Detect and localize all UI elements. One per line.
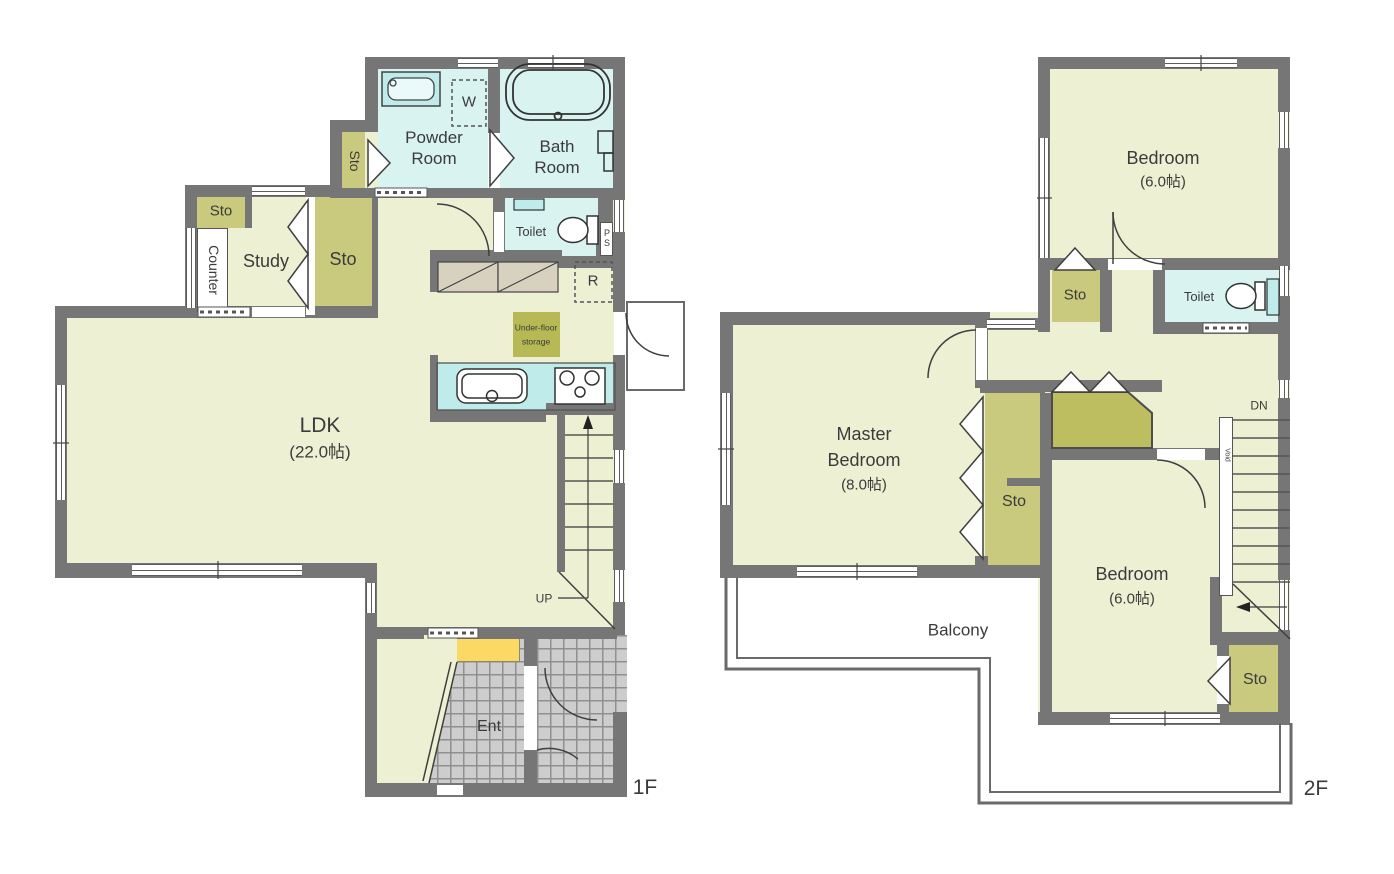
room-label-bath: Bath Room [524, 136, 590, 179]
wall [488, 57, 500, 133]
opening [306, 197, 315, 315]
room-label-ent: Ent [477, 717, 501, 737]
window [186, 228, 196, 308]
wall [377, 627, 617, 639]
wall [613, 69, 625, 200]
wall [1038, 57, 1290, 69]
void-label: Void [1222, 448, 1231, 462]
wall [546, 403, 613, 415]
sto-label-mid: Sto [1002, 492, 1026, 512]
wall [245, 190, 252, 228]
wall [1040, 393, 1052, 725]
wall [1153, 322, 1290, 334]
room-size-bedroom-low: (6.0帖) [1109, 591, 1155, 610]
wall [720, 312, 990, 325]
wall [557, 415, 565, 572]
room-label-bedroom-low: Bedroom [1095, 563, 1168, 586]
window [1039, 138, 1049, 258]
window [987, 319, 1035, 329]
window [132, 564, 302, 576]
wall [430, 410, 546, 422]
wall [372, 190, 378, 318]
window [1279, 112, 1289, 148]
floor-label-1f: 1F [633, 775, 658, 801]
wall [430, 262, 438, 292]
room-label-bedroom-top: Bedroom [1126, 147, 1199, 170]
window [1279, 266, 1289, 296]
door-opening [1217, 656, 1229, 704]
window [614, 450, 624, 483]
wall [613, 483, 625, 570]
underfloor-label-2: storage [522, 337, 550, 348]
counter-label: Counter [204, 245, 222, 295]
wall [330, 120, 378, 132]
balcony-label: Balcony [928, 619, 988, 640]
opening [488, 133, 500, 188]
window [56, 385, 66, 500]
door-opening [1157, 449, 1205, 460]
floor-label-2f: 2F [1304, 776, 1329, 802]
room-size-ldk: (22.0帖) [289, 441, 350, 462]
door-opening [976, 328, 987, 380]
ps-label: PS [603, 229, 611, 249]
wall [980, 380, 1045, 393]
stair-void-rail [1219, 417, 1233, 596]
door-opening [1108, 259, 1162, 270]
wall [430, 355, 438, 413]
wall [613, 232, 625, 312]
window [1279, 580, 1289, 630]
room-label-master-1: Master [836, 423, 891, 446]
window [252, 186, 305, 196]
window [797, 566, 917, 577]
window [528, 58, 584, 68]
room-label-ldk: LDK [300, 413, 341, 439]
window [366, 583, 376, 613]
room-label-powder: Powder Room [389, 127, 479, 170]
window [614, 570, 624, 602]
wall [1278, 148, 1290, 266]
room-label-master-2: Bedroom [827, 449, 900, 472]
sto-label-low: Sto [1243, 670, 1267, 690]
window [721, 393, 731, 505]
window [458, 58, 498, 68]
wall [613, 355, 625, 450]
wall [985, 565, 1045, 578]
underfloor-storage-box [513, 312, 560, 357]
room-toilet-2f [1165, 270, 1278, 322]
door-opening-side [614, 312, 625, 355]
opening [252, 307, 305, 317]
opening [494, 212, 504, 252]
room-size-master: (8.0帖) [841, 477, 887, 496]
sto-label-study: Sto [329, 248, 356, 271]
wall [1007, 478, 1045, 486]
stairs-up-label: UP [536, 592, 553, 607]
side-step [627, 302, 684, 390]
sto-label-hall: Sto [1064, 287, 1087, 306]
window [614, 200, 624, 232]
underfloor-label-1: Under-floor [515, 323, 558, 334]
floorplan-canvas: LDK (22.0帖) Study Counter Sto Sto Sto Po… [0, 0, 1394, 874]
sto-label-counter: Sto [210, 203, 233, 222]
room-size-bedroom-top: (6.0帖) [1140, 174, 1186, 193]
window [1165, 58, 1237, 68]
room-label-toilet-1f: Toilet [516, 224, 546, 240]
sto-label-powder: Sto [345, 150, 363, 171]
wall [365, 783, 627, 797]
room-label-toilet-2f: Toilet [1184, 289, 1214, 305]
wall [1278, 398, 1290, 580]
washer-label: W [462, 94, 476, 113]
wall [598, 198, 613, 222]
room-label-study: Study [243, 250, 289, 273]
window [1279, 380, 1289, 398]
wall [1278, 69, 1290, 112]
step-opening [437, 785, 463, 795]
wall [1040, 380, 1162, 392]
stairs-dn-label: DN [1250, 399, 1267, 414]
wall [1210, 632, 1290, 645]
fridge-label: R [588, 273, 599, 292]
window [1110, 713, 1220, 724]
wall [1278, 296, 1290, 380]
door-opening-front [524, 666, 537, 750]
